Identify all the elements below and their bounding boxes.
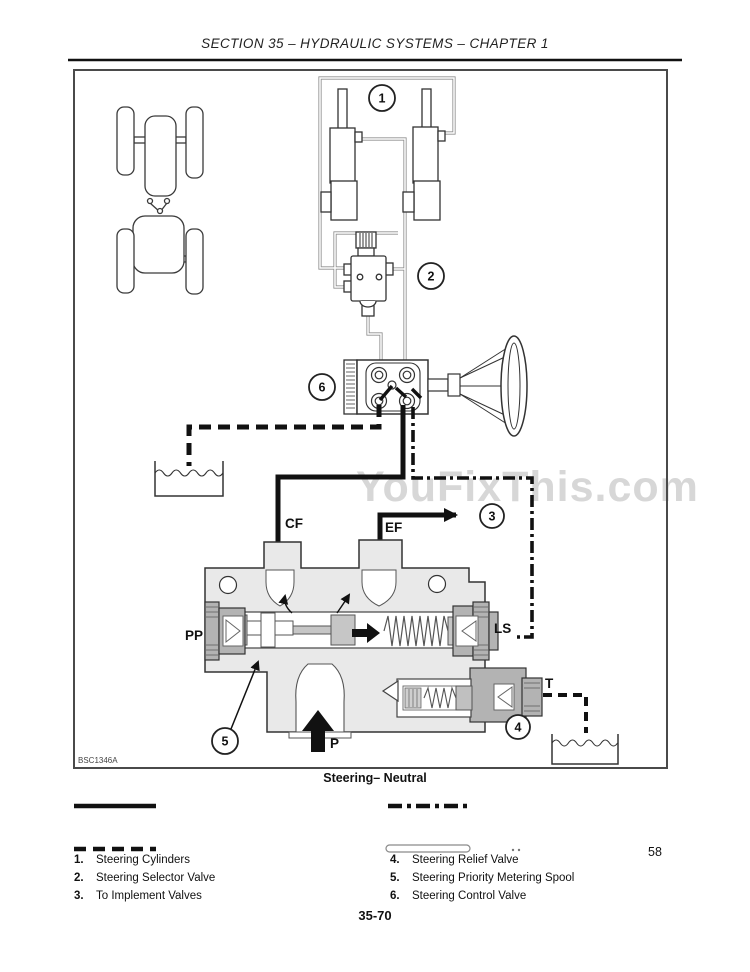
tractor-illustration (117, 107, 203, 294)
legend-list-left: 1.Steering Cylinders 2.Steering Selector… (74, 851, 215, 905)
port-label-pp: PP (185, 628, 203, 643)
legend-item-label: Steering Priority Metering Spool (412, 872, 574, 884)
legend-item-number: 2. (74, 869, 96, 887)
steering-wheel (428, 336, 527, 436)
steering-control-valve (344, 336, 527, 436)
mount-hole-left (220, 577, 237, 594)
reservoir-left (155, 461, 223, 496)
legend-item: 6.Steering Control Valve (390, 887, 574, 905)
legend-item: 4.Steering Relief Valve (390, 851, 574, 869)
port-label-ls: LS (494, 621, 511, 636)
ls-fitting (453, 602, 498, 660)
legend-item-label: Steering Selector Valve (96, 872, 215, 884)
callout-6-number: 6 (319, 381, 326, 395)
callout-5-number: 5 (222, 735, 229, 749)
port-label-p: P (330, 736, 339, 751)
port-label-cf: CF (285, 516, 303, 531)
mount-hole-right (429, 576, 446, 593)
legend-item: 1.Steering Cylinders (74, 851, 215, 869)
port-label-ef: EF (385, 520, 402, 535)
legend-item: 5.Steering Priority Metering Spool (390, 869, 574, 887)
legend-item-number: 4. (390, 851, 412, 869)
callout-3-number: 3 (489, 510, 496, 524)
legend-item: 3.To Implement Valves (74, 887, 215, 905)
legend-item-number: 3. (74, 887, 96, 905)
tank-line-dashed (543, 695, 586, 733)
legend-list-right: 4.Steering Relief Valve 5.Steering Prior… (390, 851, 574, 905)
page-number-bottom: 35-70 (0, 908, 750, 923)
legend-item-label: Steering Control Valve (412, 890, 526, 902)
reservoir-right (552, 734, 618, 764)
priority-metering-spool (215, 612, 462, 648)
legend-item-number: 5. (390, 869, 412, 887)
port-label-t: T (545, 676, 554, 691)
legend-item-number: 1. (74, 851, 96, 869)
selector-valve (344, 232, 393, 316)
figure-code: BSC1346A (78, 756, 118, 765)
pp-fitting (205, 602, 245, 660)
figure-caption: Steering– Neutral (0, 771, 750, 785)
hydraulic-schematic: 1 2 3 4 5 6 CF EF PP LS T P BSC1346A (0, 0, 750, 972)
callout-1-number: 1 (379, 92, 386, 106)
legend-item-number: 6. (390, 887, 412, 905)
manual-page: SECTION 35 – HYDRAULIC SYSTEMS – CHAPTER… (0, 0, 750, 972)
legend-item-label: Steering Relief Valve (412, 854, 519, 866)
legend-line-samples (74, 806, 520, 852)
legend-item: 2.Steering Selector Valve (74, 869, 215, 887)
callout-2-number: 2 (428, 270, 435, 284)
callout-4-number: 4 (515, 721, 522, 735)
legend-item-label: Steering Cylinders (96, 854, 190, 866)
page-number-side: 58 (648, 845, 662, 859)
legend-item-label: To Implement Valves (96, 890, 202, 902)
